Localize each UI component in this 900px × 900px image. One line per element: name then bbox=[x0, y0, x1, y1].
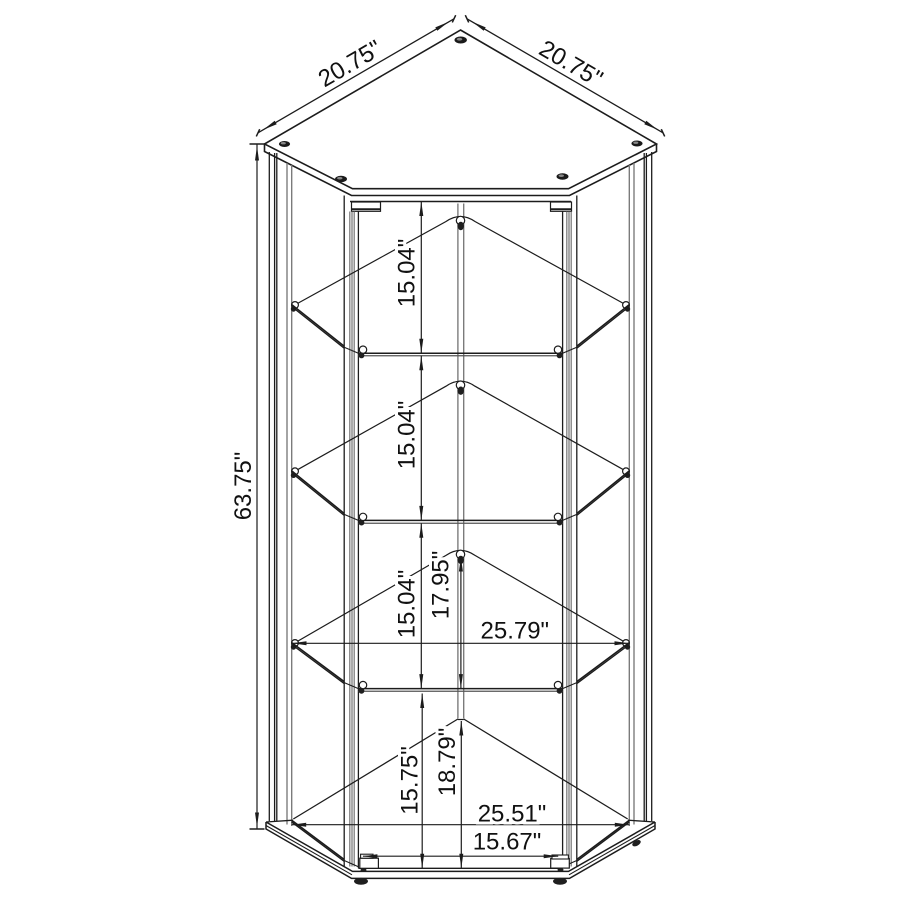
svg-text:15.75": 15.75" bbox=[397, 746, 424, 815]
svg-text:17.95": 17.95" bbox=[428, 551, 455, 620]
svg-text:15.04": 15.04" bbox=[394, 239, 421, 308]
svg-text:25.51": 25.51" bbox=[478, 801, 547, 828]
svg-text:15.04": 15.04" bbox=[394, 401, 421, 470]
svg-text:18.79": 18.79" bbox=[434, 728, 461, 797]
svg-text:25.79": 25.79" bbox=[481, 618, 550, 645]
svg-text:63.75": 63.75" bbox=[230, 452, 257, 521]
svg-text:15.04": 15.04" bbox=[394, 570, 421, 639]
svg-text:15.67": 15.67" bbox=[473, 829, 542, 856]
